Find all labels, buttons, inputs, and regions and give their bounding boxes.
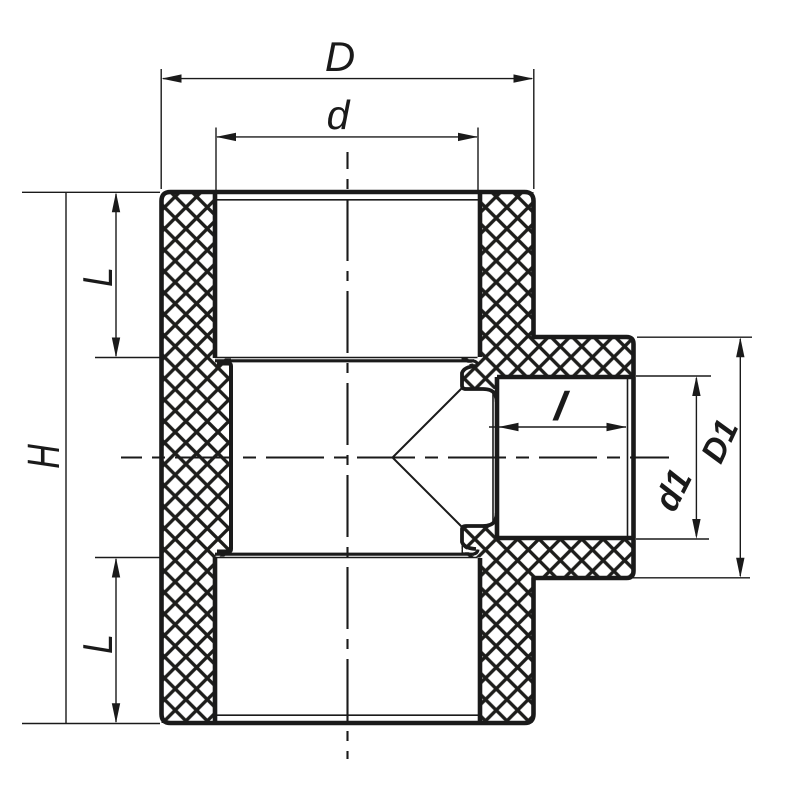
svg-text:H: H bbox=[19, 444, 69, 469]
svg-text:D: D bbox=[325, 33, 355, 80]
svg-text:L: L bbox=[75, 267, 121, 287]
svg-text:d: d bbox=[327, 92, 351, 138]
svg-text:L: L bbox=[75, 634, 121, 654]
